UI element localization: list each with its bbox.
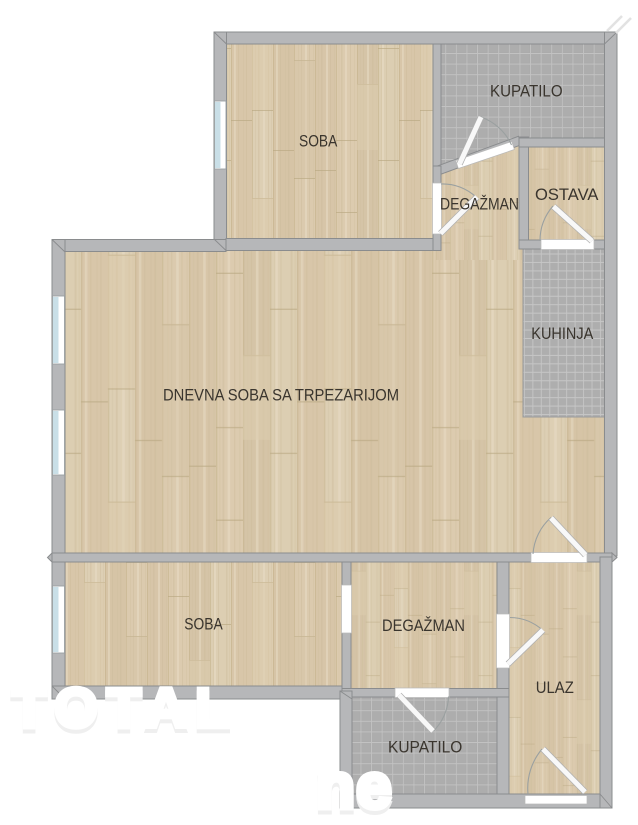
svg-text:ne: ne [316, 750, 393, 822]
svg-text:KUPATILO: KUPATILO [490, 83, 563, 101]
svg-text:ULAZ: ULAZ [536, 679, 574, 697]
svg-text:TOTAL: TOTAL [12, 676, 238, 739]
svg-text:OSTAVA: OSTAVA [535, 186, 599, 204]
svg-text:DEGAŽMAN: DEGAŽMAN [440, 195, 519, 214]
svg-text:DEGAŽMAN: DEGAŽMAN [382, 616, 465, 635]
svg-text:KUHINJA: KUHINJA [531, 325, 593, 343]
svg-text:KUPATILO: KUPATILO [388, 739, 462, 757]
svg-text:SOBA: SOBA [184, 616, 223, 634]
svg-text:DNEVNA SOBA SA TRPEZARIJOM: DNEVNA SOBA SA TRPEZARIJOM [163, 387, 399, 405]
svg-text:SOBA: SOBA [299, 133, 337, 151]
